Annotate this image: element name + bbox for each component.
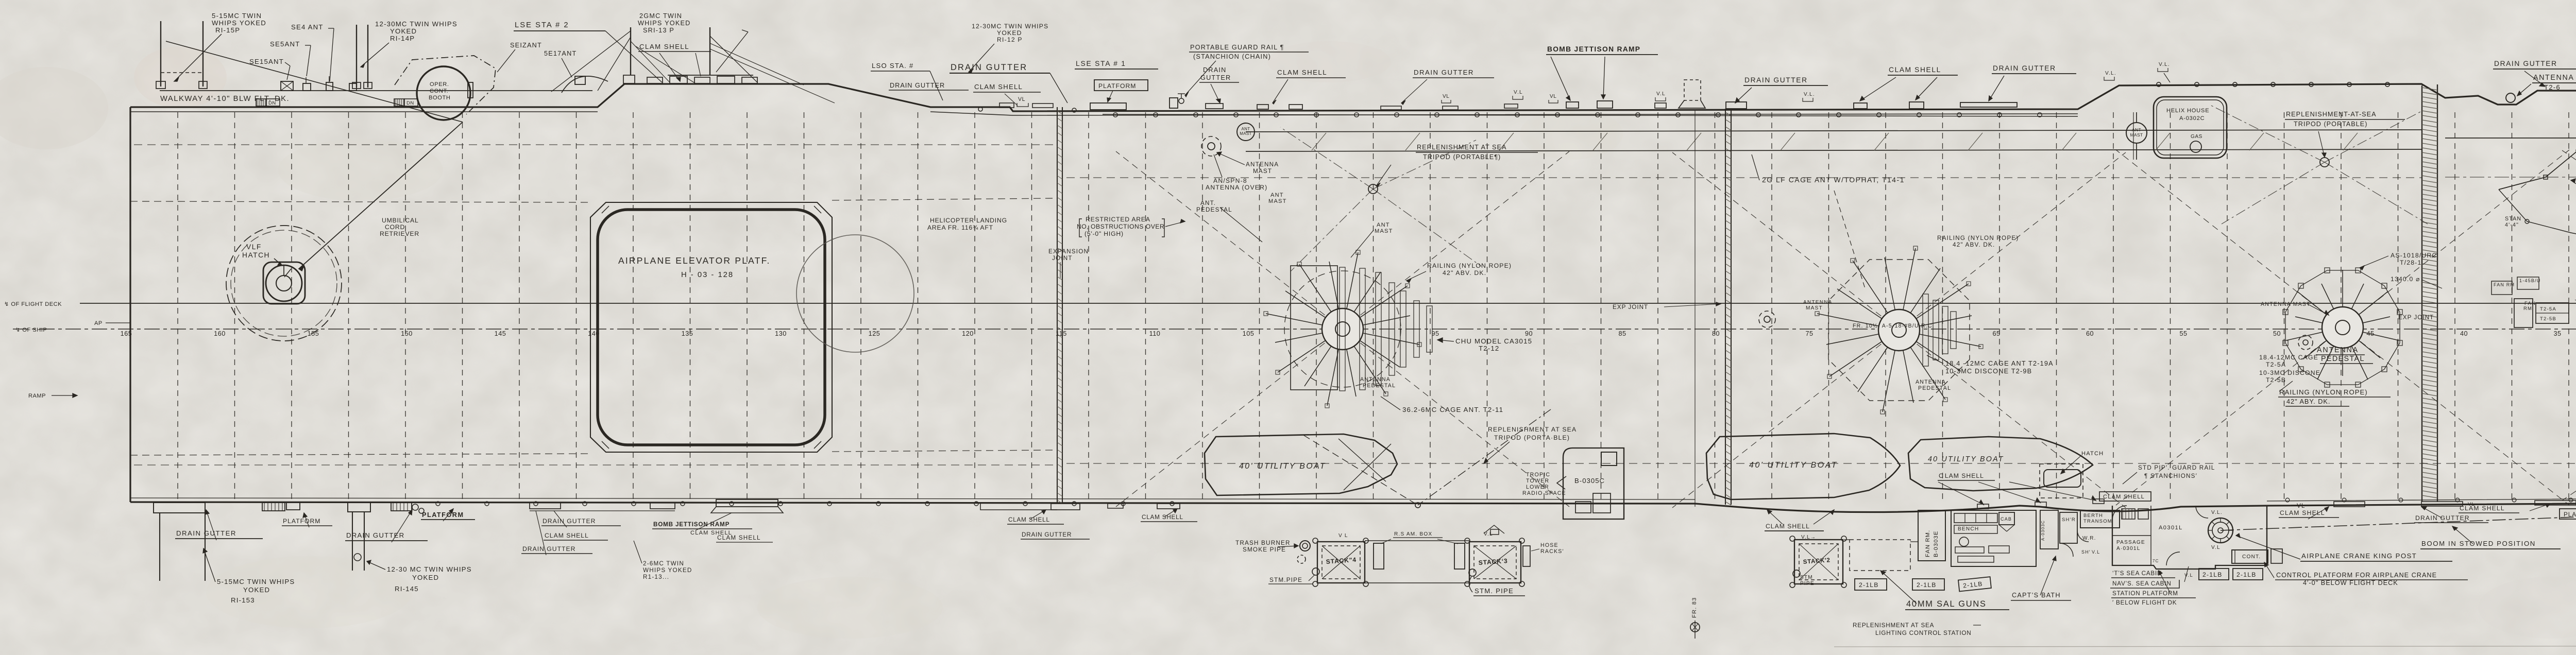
svg-text:RI-15P: RI-15P xyxy=(215,26,240,34)
svg-text:DRAIN GUTTER: DRAIN GUTTER xyxy=(890,82,945,89)
svg-text:VL: VL xyxy=(2297,503,2306,509)
svg-text:ANTENNA: ANTENNA xyxy=(1360,376,1391,383)
svg-text:CORD: CORD xyxy=(385,223,405,231)
svg-text:VL: VL xyxy=(1550,94,1556,99)
svg-text:EXP JOINT: EXP JOINT xyxy=(1613,304,1648,311)
svg-text:CLAM SHELL: CLAM SHELL xyxy=(1142,514,1183,521)
svg-text:42" ABY. DK.: 42" ABY. DK. xyxy=(2286,398,2330,405)
svg-text:40 UTILITY BOAT: 40 UTILITY BOAT xyxy=(1928,455,2004,463)
svg-text:120: 120 xyxy=(962,330,974,337)
svg-text:STM: STM xyxy=(1800,575,1813,580)
svg-text:5-15MC TWIN: 5-15MC TWIN xyxy=(212,12,262,20)
svg-text:SE5ANT: SE5ANT xyxy=(270,40,300,48)
svg-text:115: 115 xyxy=(1056,330,1067,337)
svg-text:TROPIC: TROPIC xyxy=(1526,472,1550,478)
svg-text:AS-1018/URC: AS-1018/URC xyxy=(2391,252,2437,259)
svg-text:CLAM SHELL: CLAM SHELL xyxy=(690,530,732,536)
svg-text:RI-12 P: RI-12 P xyxy=(997,36,1023,43)
svg-text:SMOKE PIPE: SMOKE PIPE xyxy=(1243,546,1286,553)
svg-text:RAILING (NYLON ROPE): RAILING (NYLON ROPE) xyxy=(1427,262,1512,269)
svg-text:CLAM SHELL: CLAM SHELL xyxy=(974,83,1023,91)
svg-text:VL: VL xyxy=(1443,94,1449,99)
svg-text:REPLENISHMENT AT SEA: REPLENISHMENT AT SEA xyxy=(1853,622,1934,629)
svg-text:2G LF CAGE ANT W/TOPHAT, T14: 2G LF CAGE ANT W/TOPHAT, T14-1 xyxy=(1762,176,1905,184)
svg-text:ANT: ANT xyxy=(1242,127,1250,131)
svg-text:STATION PLATFORM: STATION PLATFORM xyxy=(2112,590,2178,597)
svg-text:DRAIN GUTTER: DRAIN GUTTER xyxy=(951,63,1027,72)
svg-text:RAILING (NYLON ROPE): RAILING (NYLON ROPE) xyxy=(2279,388,2368,396)
svg-text:HOSE: HOSE xyxy=(1540,542,1558,548)
svg-text:110: 110 xyxy=(1149,330,1161,337)
svg-text:B-0303E: B-0303E xyxy=(1933,530,1939,557)
svg-text:165: 165 xyxy=(121,330,132,337)
svg-text:DRAIN: DRAIN xyxy=(1203,66,1226,74)
svg-text:DRAIN GUTTER: DRAIN GUTTER xyxy=(1993,64,2056,72)
svg-text:OPER.: OPER. xyxy=(430,81,449,88)
svg-text:DRAIN GUTTER: DRAIN GUTTER xyxy=(522,545,575,553)
svg-text:AIRPLANE ELEVATOR PLATF.: AIRPLANE ELEVATOR PLATF. xyxy=(618,255,771,266)
svg-text:FR. 10½, A-5-18-#B/U.R.C.: FR. 10½, A-5-18-#B/U.R.C. xyxy=(1853,323,1935,329)
svg-text:STD PIP′. GUARD RAIL: STD PIP′. GUARD RAIL xyxy=(2138,464,2215,471)
svg-text:PEDESTAL: PEDESTAL xyxy=(2321,355,2365,363)
svg-text:CLAM SHELL: CLAM SHELL xyxy=(1889,66,1941,74)
svg-text:10-3MC DISCONE T2-9B: 10-3MC DISCONE T2-9B xyxy=(1945,368,2032,375)
svg-text:CLAM SHELL: CLAM SHELL xyxy=(545,532,589,539)
svg-text:40: 40 xyxy=(2460,330,2468,337)
svg-text:PASSAGE: PASSAGE xyxy=(2116,540,2145,545)
svg-text:MAST: MAST xyxy=(1375,228,1393,234)
svg-text:4′-0" BELOW FLIGHT DECK: 4′-0" BELOW FLIGHT DECK xyxy=(2303,579,2398,587)
svg-text:GAS: GAS xyxy=(2191,134,2202,140)
svg-text:WHIPS YOKED: WHIPS YOKED xyxy=(643,567,692,574)
svg-text:W.R.: W.R. xyxy=(2082,536,2096,541)
svg-text:R1-13...: R1-13... xyxy=(643,574,669,580)
svg-text:VL: VL xyxy=(2468,502,2475,507)
svg-text:RAILING (NYLON ROPE): RAILING (NYLON ROPE) xyxy=(1937,235,2019,242)
svg-text:42" ABV. DK.: 42" ABV. DK. xyxy=(1953,242,1995,248)
svg-text:TRIPOD (PORTABLE): TRIPOD (PORTABLE) xyxy=(2294,120,2367,128)
svg-text:UMBILICAL: UMBILICAL xyxy=(382,217,419,224)
svg-text:VLF: VLF xyxy=(246,243,262,251)
svg-text:CONTROL PLATFORM FOR AIRPLA: CONTROL PLATFORM FOR AIRPLANE CRANE xyxy=(2276,572,2437,579)
svg-text:YOKED: YOKED xyxy=(997,29,1022,37)
svg-text:HATCH: HATCH xyxy=(242,251,270,259)
svg-text:EXPANSION: EXPANSION xyxy=(1048,248,1089,255)
svg-text:12-30 MC TWIN WHIPS: 12-30 MC TWIN WHIPS xyxy=(387,565,472,573)
svg-text:LSE STA # 2: LSE STA # 2 xyxy=(515,21,569,29)
svg-text:2-1LB: 2-1LB xyxy=(2202,571,2223,578)
svg-text:HATCH: HATCH xyxy=(2081,451,2104,457)
svg-text:40' UTILITY BOAT: 40' UTILITY BOAT xyxy=(1749,461,1838,470)
svg-text:DRAIN GUTTER: DRAIN GUTTER xyxy=(2494,60,2557,67)
svg-text:ANTENNA: ANTENNA xyxy=(1803,300,1833,305)
svg-text:7C: 7C xyxy=(2153,559,2159,563)
svg-text:BOOM IN STOWED POSITION: BOOM IN STOWED POSITION xyxy=(2421,540,2536,547)
svg-text:AN/SPN-8: AN/SPN-8 xyxy=(1213,177,1247,184)
svg-text:PEDESTAL: PEDESTAL xyxy=(1196,206,1232,213)
svg-text:YOKED: YOKED xyxy=(390,27,417,35)
svg-text:T/28-1: T/28-1 xyxy=(2400,259,2421,266)
svg-text:MAST: MAST xyxy=(2130,132,2143,137)
svg-text:DRAIN GUTTER: DRAIN GUTTER xyxy=(176,529,236,537)
svg-text:2GMC TWIN: 2GMC TWIN xyxy=(639,12,682,20)
svg-text:95: 95 xyxy=(1431,330,1439,337)
svg-text:2-1LB: 2-1LB xyxy=(2236,571,2257,578)
svg-text:2-1LB: 2-1LB xyxy=(1917,581,1937,589)
svg-text:HELICOPTER LANDING: HELICOPTER LANDING xyxy=(930,217,1007,224)
svg-text:LIGHTING CONTROL STATION: LIGHTING CONTROL STATION xyxy=(1875,630,1972,636)
svg-text:RETRIEVER: RETRIEVER xyxy=(380,230,419,237)
svg-text:SEIZANT: SEIZANT xyxy=(510,42,542,49)
svg-text:CLAM SHELL: CLAM SHELL xyxy=(639,43,689,50)
svg-text:55: 55 xyxy=(2179,330,2187,337)
svg-text:V.L.: V.L. xyxy=(2211,510,2223,515)
svg-text:WHIPS YOKED: WHIPS YOKED xyxy=(638,20,691,27)
svg-text:75: 75 xyxy=(1805,330,1813,337)
svg-text:BERTH: BERTH xyxy=(2083,513,2103,519)
svg-text:85: 85 xyxy=(1618,330,1626,337)
svg-text:135: 135 xyxy=(682,330,693,337)
svg-text:V.L.: V.L. xyxy=(2105,71,2116,76)
svg-text:AP: AP xyxy=(94,320,103,326)
svg-text:PEDESTAL: PEDESTAL xyxy=(1363,383,1396,389)
svg-text:¶ STANCHIONS′: ¶ STANCHIONS′ xyxy=(2144,473,2197,479)
svg-text:1-45B/U: 1-45B/U xyxy=(2519,278,2540,283)
svg-text:NAV’S. SEA CABIN: NAV’S. SEA CABIN xyxy=(2112,580,2172,587)
svg-text:HELIX HOUSE: HELIX HOUSE xyxy=(2166,108,2209,114)
svg-text:CLAM SHELL: CLAM SHELL xyxy=(2460,505,2505,512)
svg-text:125: 125 xyxy=(869,330,880,337)
svg-text:V.L.: V.L. xyxy=(2159,62,2170,67)
svg-text:145: 145 xyxy=(495,330,506,337)
svg-text:WHIPS YOKED: WHIPS YOKED xyxy=(212,19,266,27)
svg-text:DN: DN xyxy=(406,100,414,106)
svg-text:12-30MC TWIN WHIPS: 12-30MC TWIN WHIPS xyxy=(972,23,1048,30)
svg-text:↯ OF FLIGHT DECK: ↯ OF FLIGHT DECK xyxy=(4,301,62,307)
svg-text:STM. PIPE: STM. PIPE xyxy=(1475,587,1514,595)
svg-text:′ BELOW FLIGHT DK: ′ BELOW FLIGHT DK xyxy=(2112,599,2177,606)
svg-text:2-1LB: 2-1LB xyxy=(1859,581,1879,589)
svg-text:35: 35 xyxy=(2553,330,2561,337)
svg-text:V.L: V.L xyxy=(1514,90,1523,95)
svg-text:RESTRICTED AREA: RESTRICTED AREA xyxy=(1086,216,1150,223)
svg-text:RACKS′: RACKS′ xyxy=(1540,548,1564,555)
svg-text:1340.0 ⌀: 1340.0 ⌀ xyxy=(2391,275,2420,283)
svg-text:80: 80 xyxy=(1712,330,1720,337)
svg-text:V.L: V.L xyxy=(2092,549,2100,555)
svg-text:T2-5B: T2-5B xyxy=(2540,316,2556,322)
svg-text:BOOTH: BOOTH xyxy=(429,95,450,101)
svg-text:STM.PIPE: STM.PIPE xyxy=(1269,577,1302,583)
svg-text:DRAIN GUTTER: DRAIN GUTTER xyxy=(1414,68,1474,76)
svg-text:40' UTILITY BOAT: 40' UTILITY BOAT xyxy=(1239,462,1326,471)
svg-text:36.2-6MC CAGE ANT. T2-11: 36.2-6MC CAGE ANT. T2-11 xyxy=(1402,406,1503,413)
svg-text:C LAM SHELL: C LAM SHELL xyxy=(1939,472,1984,479)
svg-text:EXP JOINT: EXP JOINT xyxy=(2398,314,2434,321)
svg-text:T2-5B: T2-5B xyxy=(2266,376,2286,384)
svg-text:TRASH BURNER: TRASH BURNER xyxy=(1235,540,1291,546)
svg-text:SH’R: SH’R xyxy=(2062,517,2076,523)
svg-text:12-30MC TWIN WHIPS: 12-30MC TWIN WHIPS xyxy=(375,20,457,28)
svg-text:R.S AM. BOX: R.S AM. BOX xyxy=(1394,531,1432,537)
svg-text:TRIPOD (PORTABLE¶): TRIPOD (PORTABLE¶) xyxy=(1423,153,1501,161)
svg-text:PEDESTAL: PEDESTAL xyxy=(1918,385,1951,391)
svg-text:60: 60 xyxy=(2086,330,2094,337)
svg-text:PLATFORM: PLATFORM xyxy=(283,518,320,525)
svg-text:T2-12: T2-12 xyxy=(1479,344,1499,352)
svg-text:STAN: STAN xyxy=(2505,216,2521,222)
svg-text:150: 150 xyxy=(401,330,413,337)
svg-text:CAB: CAB xyxy=(2001,516,2012,522)
svg-text:2-6MC TWIN: 2-6MC TWIN xyxy=(643,560,684,567)
svg-text:AIRPLANE CRANE KING POST: AIRPLANE CRANE KING POST xyxy=(2301,552,2417,560)
svg-text:ANTENNA: ANTENNA xyxy=(2533,74,2574,82)
svg-text:FAN RM.: FAN RM. xyxy=(1925,530,1931,557)
svg-text:DRAIN GUTTER: DRAIN GUTTER xyxy=(543,518,596,525)
svg-text:AREA FR. 116¾ AFT: AREA FR. 116¾ AFT xyxy=(927,224,993,231)
svg-text:JOINT: JOINT xyxy=(1052,255,1073,262)
svg-text:DN: DN xyxy=(268,100,276,106)
svg-text:TRANSOM: TRANSOM xyxy=(2083,519,2112,524)
svg-text:SE15ANT: SE15ANT xyxy=(249,58,284,65)
svg-text:5-15MC TWIN WHIPS: 5-15MC TWIN WHIPS xyxy=(217,578,295,585)
svg-text:RADIO SPACE: RADIO SPACE xyxy=(1522,490,1566,496)
svg-text:PLATFORM: PLATFORM xyxy=(1098,82,1136,90)
svg-text:PLATFORM: PLATFORM xyxy=(2564,511,2576,518)
svg-text:FAN RM: FAN RM xyxy=(2494,282,2515,287)
svg-text:T2-6: T2-6 xyxy=(2544,83,2561,91)
svg-text:A·0301L: A·0301L xyxy=(2116,546,2141,551)
svg-text:ANT.: ANT. xyxy=(1200,200,1216,206)
svg-text:18.4 -12MC CAGE ANT T2-19A: 18.4 -12MC CAGE ANT T2-19A xyxy=(1945,360,2054,367)
svg-text:REPLENISHMENT-AT-SEA: REPLENISHMENT-AT-SEA xyxy=(2286,111,2377,118)
svg-text:SH′: SH′ xyxy=(2081,549,2091,555)
svg-text:‘T’S SEA CABIN: ‘T’S SEA CABIN xyxy=(2112,570,2162,577)
svg-text:RI-145: RI-145 xyxy=(395,585,419,593)
svg-text:5E17ANT: 5E17ANT xyxy=(544,50,577,57)
svg-text:50: 50 xyxy=(2273,330,2281,337)
svg-text:LSE STA # 1: LSE STA # 1 xyxy=(1076,60,1126,67)
svg-text:H - 03 - 128: H - 03 - 128 xyxy=(681,271,734,279)
svg-text:RAMP: RAMP xyxy=(28,393,46,399)
svg-text:CONT.: CONT. xyxy=(2242,554,2261,560)
svg-text:V.L.: V.L. xyxy=(1804,92,1815,97)
svg-text:GUTTER: GUTTER xyxy=(1200,74,1231,81)
svg-text:CLAM SHELL: CLAM SHELL xyxy=(2103,494,2145,500)
svg-text:LOWER: LOWER xyxy=(1526,484,1549,490)
svg-text:ANTENNA: ANTENNA xyxy=(1916,379,1946,385)
svg-text:CLAM SHELL: CLAM SHELL xyxy=(1766,523,1810,530)
svg-text:RI-14P: RI-14P xyxy=(390,35,415,42)
svg-text:CAPT’S BATH: CAPT’S BATH xyxy=(2012,592,2061,599)
svg-text:MAST: MAST xyxy=(1253,168,1272,175)
svg-text:A-0302C: A-0302C xyxy=(2179,115,2205,122)
svg-text:RM: RM xyxy=(2523,306,2532,312)
svg-text:ANT: ANT xyxy=(1377,222,1390,228)
svg-text:ANTENNA (OVER): ANTENNA (OVER) xyxy=(1206,184,1267,191)
svg-text:BENCH: BENCH xyxy=(1958,526,1979,532)
svg-text:130: 130 xyxy=(775,330,787,337)
svg-text:T2-5A: T2-5A xyxy=(2266,361,2286,368)
svg-text:TOWER: TOWER xyxy=(1526,478,1549,484)
svg-text:CLAM SHELL: CLAM SHELL xyxy=(1277,68,1327,76)
svg-text:SRI-13 P: SRI-13 P xyxy=(643,27,674,34)
svg-text:105: 105 xyxy=(1243,330,1255,337)
svg-text:LSO STA. #: LSO STA. # xyxy=(872,62,913,70)
svg-text:DRAIN GUTTER: DRAIN GUTTER xyxy=(2415,514,2470,522)
svg-text:40MM SAL GUNS: 40MM SAL GUNS xyxy=(1906,599,1987,609)
svg-text:PORTABLE GUARD RAIL ¶: PORTABLE GUARD RAIL ¶ xyxy=(1190,44,1284,51)
svg-text:YOKED: YOKED xyxy=(243,586,270,594)
svg-text:B-0305C: B-0305C xyxy=(1574,477,1605,485)
svg-text:CLAM SHELL: CLAM SHELL xyxy=(1008,516,1050,523)
svg-text:(STANCHION (CHAIN): (STANCHION (CHAIN) xyxy=(1193,53,1271,60)
svg-text:YOKED: YOKED xyxy=(412,574,439,581)
svg-text:155: 155 xyxy=(308,330,319,337)
svg-text:DRAIN GUTTER: DRAIN GUTTER xyxy=(1744,76,1808,84)
svg-text:A0301L: A0301L xyxy=(2159,525,2183,531)
svg-text:VL: VL xyxy=(1018,96,1025,102)
svg-text:CHU MODEL CA3015: CHU MODEL CA3015 xyxy=(1455,337,1532,345)
svg-text:ANTENNA: ANTENNA xyxy=(1246,161,1279,168)
svg-text:MAST: MAST xyxy=(1806,305,1823,311)
svg-text:CONT.: CONT. xyxy=(430,88,448,94)
svg-text:REPLENISHMENT AT SEA: REPLENISHMENT AT SEA xyxy=(1488,426,1577,433)
svg-text:V.L: V.L xyxy=(1656,91,1666,97)
svg-text:TRIPOD (PORTA·BLE): TRIPOD (PORTA·BLE) xyxy=(1494,434,1570,441)
svg-text:MAST: MAST xyxy=(1240,131,1251,136)
svg-text:BOMB JETTISON RAMP: BOMB JETTISON RAMP xyxy=(653,521,730,528)
svg-text:T2-5A: T2-5A xyxy=(2540,306,2556,312)
svg-text:(5'-0" HIGH): (5'-0" HIGH) xyxy=(1084,230,1124,237)
svg-text:90: 90 xyxy=(1525,330,1533,337)
svg-text:ANTENNA MAST: ANTENNA MAST xyxy=(2261,301,2311,307)
svg-text:160: 160 xyxy=(214,330,226,337)
svg-text:RI-153: RI-153 xyxy=(231,596,255,604)
svg-text:65: 65 xyxy=(1992,330,2000,337)
svg-text:BOMB JETTISON RAMP: BOMB JETTISON RAMP xyxy=(1547,45,1640,53)
svg-text:A-0303C: A-0303C xyxy=(2041,520,2045,541)
svg-text:PLATFORM: PLATFORM xyxy=(422,511,464,519)
svg-text:V.L: V.L xyxy=(2211,545,2221,550)
svg-text:42" ABV. DK.: 42" ABV. DK. xyxy=(1443,269,1486,277)
svg-text:ANT: ANT xyxy=(1270,192,1284,198)
svg-text:REPLENISHMENT AT SEA: REPLENISHMENT AT SEA xyxy=(1417,144,1506,151)
svg-text:MAST: MAST xyxy=(1268,198,1287,204)
svg-text:SE4 ANT: SE4 ANT xyxy=(291,23,324,31)
svg-text:4'-4": 4'-4" xyxy=(2505,222,2519,228)
svg-text:18.4-12MC CAGE: 18.4-12MC CAGE xyxy=(2259,354,2318,361)
svg-text:NO, OBSTRUCTIONS OVER: NO, OBSTRUCTIONS OVER xyxy=(1077,223,1164,230)
svg-text:ANTENNA: ANTENNA xyxy=(2317,346,2359,354)
svg-text:PIPE: PIPE xyxy=(1800,581,1815,587)
svg-text:FR. 83: FR. 83 xyxy=(1691,597,1698,618)
svg-text:DRAIN GUTTER: DRAIN GUTTER xyxy=(1022,531,1072,538)
svg-text:10-3MC DISCONE: 10-3MC DISCONE xyxy=(2259,369,2320,376)
svg-text:↯ OF SHIP: ↯ OF SHIP xyxy=(15,327,47,333)
svg-text:V L: V L xyxy=(1338,533,1348,539)
